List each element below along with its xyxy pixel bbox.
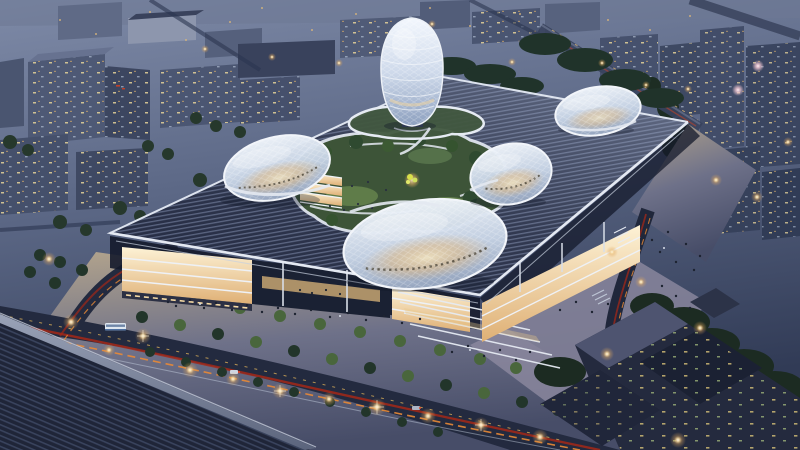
street-lamp [635, 276, 647, 288]
street-lamp [201, 45, 209, 53]
egg-highlight [392, 28, 416, 60]
street-lamp [598, 59, 606, 67]
rendering-canvas: Aerial dusk rendering of a futuristic ca… [0, 0, 800, 450]
street-lamp [428, 20, 436, 28]
street-lamp [606, 246, 618, 258]
street-lamp [751, 191, 763, 203]
street-lamp [182, 362, 198, 378]
car [412, 406, 420, 410]
street-lamp [532, 429, 548, 445]
night-city-rendering: Aerial dusk rendering of a futuristic ca… [0, 0, 800, 450]
car-tail-light [238, 371, 240, 373]
street-lamp [335, 59, 343, 67]
lawn-mound [408, 148, 452, 164]
city-block-dark [238, 40, 335, 78]
street-lamp [710, 174, 722, 186]
city-block [545, 2, 600, 34]
street-lamp [42, 252, 56, 266]
street-lamp [322, 392, 336, 406]
street-lamp-pink [732, 84, 744, 96]
palm-sculpture [404, 172, 420, 188]
street-lamp [268, 53, 276, 61]
street-lamp [642, 81, 650, 89]
street-lamp-pink [752, 60, 764, 72]
street-lamp [63, 314, 79, 330]
street-lamp [508, 58, 516, 66]
car-tail-light [419, 407, 421, 409]
street-lamp [783, 137, 793, 147]
street-lamp [600, 347, 614, 361]
city-block [0, 58, 24, 128]
street-lamp [684, 85, 692, 93]
street-lamp [420, 408, 436, 424]
city-bus [105, 323, 126, 331]
street-lamp [670, 432, 686, 448]
street-lamp [103, 344, 115, 356]
street-lamp [226, 372, 240, 386]
city-block [58, 2, 122, 40]
street-lamp [693, 321, 707, 335]
